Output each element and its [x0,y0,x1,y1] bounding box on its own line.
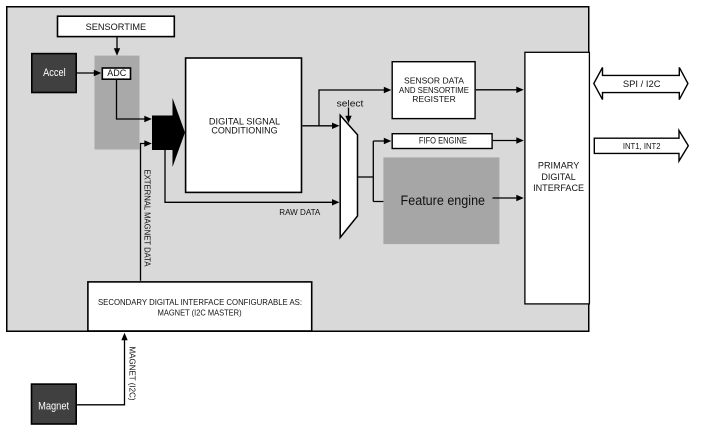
svg-text:INT1, INT2: INT1, INT2 [623,141,661,151]
svg-text:SPI / I2C: SPI / I2C [623,79,661,89]
svg-text:EXTERNAL MAGNET DATA: EXTERNAL MAGNET DATA [143,170,153,267]
svg-text:INTERFACE: INTERFACE [533,183,584,194]
svg-text:select: select [337,98,364,109]
svg-text:Magnet: Magnet [38,400,69,412]
svg-text:MAGNET (I2C): MAGNET (I2C) [128,347,137,401]
svg-text:DIGITAL: DIGITAL [541,172,575,183]
svg-text:FIFO ENGINE: FIFO ENGINE [419,136,467,146]
svg-text:SECONDARY DIGITAL INTERFACE CO: SECONDARY DIGITAL INTERFACE CONFIGURABLE… [98,298,302,307]
svg-text:PRIMARY: PRIMARY [538,161,580,172]
svg-text:SENSORTIME: SENSORTIME [86,22,147,33]
svg-text:RAW DATA: RAW DATA [279,207,320,217]
svg-text:MAGNET (I2C MASTER): MAGNET (I2C MASTER) [158,309,242,318]
svg-text:CONDITIONING: CONDITIONING [211,126,277,137]
svg-text:Accel: Accel [43,67,66,79]
svg-text:Feature engine: Feature engine [401,193,486,208]
svg-text:ADC: ADC [107,68,127,78]
svg-text:REGISTER: REGISTER [412,94,456,104]
